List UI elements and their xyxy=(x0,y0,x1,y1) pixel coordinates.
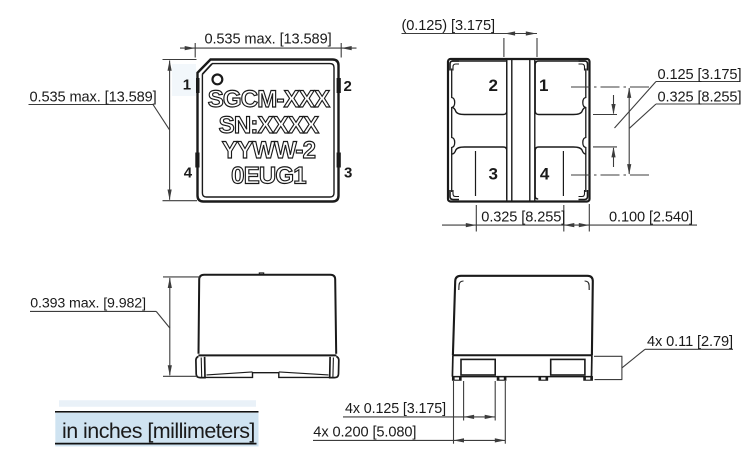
svg-text:4x 0.200 [5.080]: 4x 0.200 [5.080] xyxy=(313,425,416,441)
svg-text:4x 0.125 [3.175]: 4x 0.125 [3.175] xyxy=(345,401,446,417)
svg-text:0.125 [3.175]: 0.125 [3.175] xyxy=(658,67,742,83)
svg-text:4: 4 xyxy=(184,164,193,181)
svg-text:4x 0.11 [2.79]: 4x 0.11 [2.79] xyxy=(647,334,733,350)
svg-text:0.393 max. [9.982]: 0.393 max. [9.982] xyxy=(30,296,146,312)
svg-text:1: 1 xyxy=(183,77,191,94)
svg-text:SGCM-XXX: SGCM-XXX xyxy=(208,86,330,113)
svg-text:1: 1 xyxy=(539,76,548,95)
svg-text:YYWW-2: YYWW-2 xyxy=(222,137,316,164)
svg-text:0EUG1: 0EUG1 xyxy=(231,162,306,189)
svg-text:3: 3 xyxy=(489,165,498,184)
svg-text:SN:XXXX: SN:XXXX xyxy=(219,112,320,139)
svg-text:4: 4 xyxy=(540,165,550,184)
svg-text:2: 2 xyxy=(344,78,352,95)
svg-text:0.325 [8.255]: 0.325 [8.255] xyxy=(481,209,565,225)
svg-text:in inches [millimeters]: in inches [millimeters] xyxy=(62,419,255,443)
svg-text:0.325 [8.255]: 0.325 [8.255] xyxy=(658,89,742,105)
svg-text:3: 3 xyxy=(344,164,352,181)
svg-text:2: 2 xyxy=(489,76,498,95)
svg-text:0.535 max. [13.589]: 0.535 max. [13.589] xyxy=(30,90,157,106)
svg-text:0.535 max. [13.589]: 0.535 max. [13.589] xyxy=(204,32,331,48)
svg-text:(0.125) [3.175]: (0.125) [3.175] xyxy=(402,18,495,34)
svg-text:0.100 [2.540]: 0.100 [2.540] xyxy=(609,209,693,225)
